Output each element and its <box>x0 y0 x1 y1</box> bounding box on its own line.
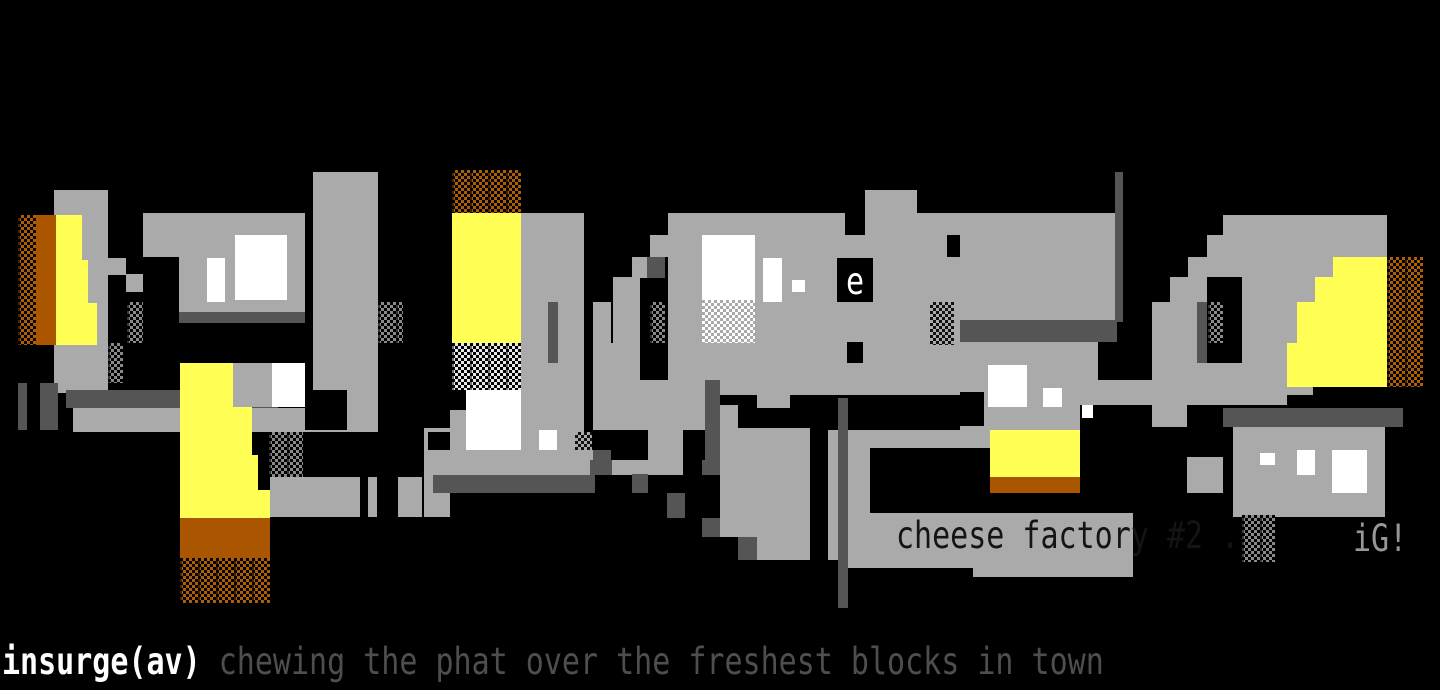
art-cell <box>1332 450 1367 493</box>
art-cell <box>720 405 738 537</box>
art-cell <box>930 302 954 345</box>
art-cell <box>180 558 270 603</box>
art-cell <box>398 477 422 517</box>
art-cell <box>647 257 665 278</box>
art-cell <box>18 383 27 430</box>
art-cell <box>960 342 1098 393</box>
art-cell <box>847 342 863 363</box>
art-cell <box>763 258 782 302</box>
art-cell <box>452 170 521 213</box>
art-cell <box>667 493 685 518</box>
art-cell <box>828 430 838 560</box>
art-cell <box>1287 343 1387 387</box>
art-cell <box>126 274 144 292</box>
art-cell <box>865 190 917 213</box>
art-cell <box>179 312 305 323</box>
art-cell <box>593 343 640 380</box>
art-cell <box>272 363 305 407</box>
art-cell <box>702 235 755 300</box>
art-cell <box>368 477 377 517</box>
art-cell <box>233 363 272 407</box>
art-cell <box>838 398 848 608</box>
art-cell <box>108 258 126 275</box>
art-cell <box>40 383 58 430</box>
art-cell <box>108 343 123 383</box>
art-cell <box>1187 457 1223 493</box>
art-cell <box>450 410 466 450</box>
artwork-caption: cheese factory #2 . <box>896 514 1239 559</box>
art-cell <box>1115 172 1123 322</box>
art-cell <box>428 432 450 450</box>
art-cell <box>127 302 143 343</box>
footer-credit-line: insurge(av) chewing the phat over the fr… <box>2 640 1104 685</box>
art-cell <box>648 430 683 475</box>
art-cell <box>1297 302 1387 343</box>
art-cell <box>593 380 705 430</box>
art-cell <box>433 450 593 475</box>
art-cell <box>612 460 648 475</box>
art-cell <box>378 302 403 343</box>
art-cell <box>180 518 270 558</box>
art-cell <box>548 302 558 363</box>
art-cell <box>757 380 790 408</box>
art-cell <box>270 477 360 517</box>
art-cell <box>539 430 557 450</box>
art-cell <box>1297 450 1315 475</box>
art-cell <box>207 258 225 302</box>
art-cell <box>792 280 805 292</box>
art-cell <box>180 407 252 455</box>
art-cell <box>305 390 347 430</box>
art-cell <box>845 213 865 235</box>
art-cell <box>1187 405 1223 457</box>
ansi-art-canvas <box>0 0 1440 690</box>
art-cell <box>313 172 378 390</box>
art-cell <box>702 300 755 343</box>
art-cell <box>452 343 521 390</box>
art-cell <box>180 455 258 490</box>
art-cell <box>269 432 303 477</box>
art-cell <box>56 215 82 260</box>
art-cell <box>56 260 88 303</box>
art-cell <box>1152 405 1187 427</box>
art-cell <box>650 235 668 257</box>
art-cell <box>1260 453 1275 465</box>
art-cell <box>56 303 97 345</box>
art-cell <box>870 448 990 513</box>
art-cell <box>960 392 984 426</box>
art-cell <box>1170 277 1188 342</box>
art-cell <box>990 477 1080 493</box>
art-cell <box>1043 388 1062 407</box>
footer-tagline: chewing the phat over the freshest block… <box>201 640 1104 684</box>
art-cell <box>947 235 960 257</box>
art-cell <box>738 537 757 560</box>
artist-handle: insurge(av) <box>2 640 201 684</box>
art-cell <box>702 518 720 537</box>
art-cell <box>1208 302 1223 343</box>
art-cell <box>1080 427 1187 513</box>
art-cell <box>1152 302 1170 342</box>
art-cell <box>452 213 521 343</box>
art-cell <box>973 568 1133 577</box>
ansi-art-screen: e cheese factory #2 . iG! insurge(av) ch… <box>0 0 1440 690</box>
art-cell <box>433 475 595 493</box>
art-cell <box>347 390 378 432</box>
art-cell <box>632 474 648 493</box>
art-cell <box>988 365 1027 407</box>
artist-group-signature: iG! <box>1353 517 1407 562</box>
art-cell <box>180 490 270 518</box>
art-cell <box>702 460 720 475</box>
art-cell <box>180 363 233 407</box>
art-cell <box>235 235 287 300</box>
art-cell <box>1223 215 1387 235</box>
art-cell <box>1333 257 1387 277</box>
art-cell <box>466 390 521 450</box>
art-cell <box>1242 515 1275 562</box>
e-glyph: e <box>837 260 873 315</box>
art-cell <box>650 302 665 343</box>
art-cell <box>36 215 56 345</box>
art-cell <box>590 460 612 475</box>
art-cell <box>1315 277 1387 302</box>
art-cell <box>1223 408 1403 427</box>
art-cell <box>848 430 990 448</box>
art-cell <box>960 320 1117 342</box>
art-cell <box>1197 302 1207 363</box>
art-cell <box>990 430 1080 477</box>
art-cell <box>143 257 179 323</box>
art-cell <box>18 215 36 345</box>
art-cell <box>1387 257 1423 387</box>
